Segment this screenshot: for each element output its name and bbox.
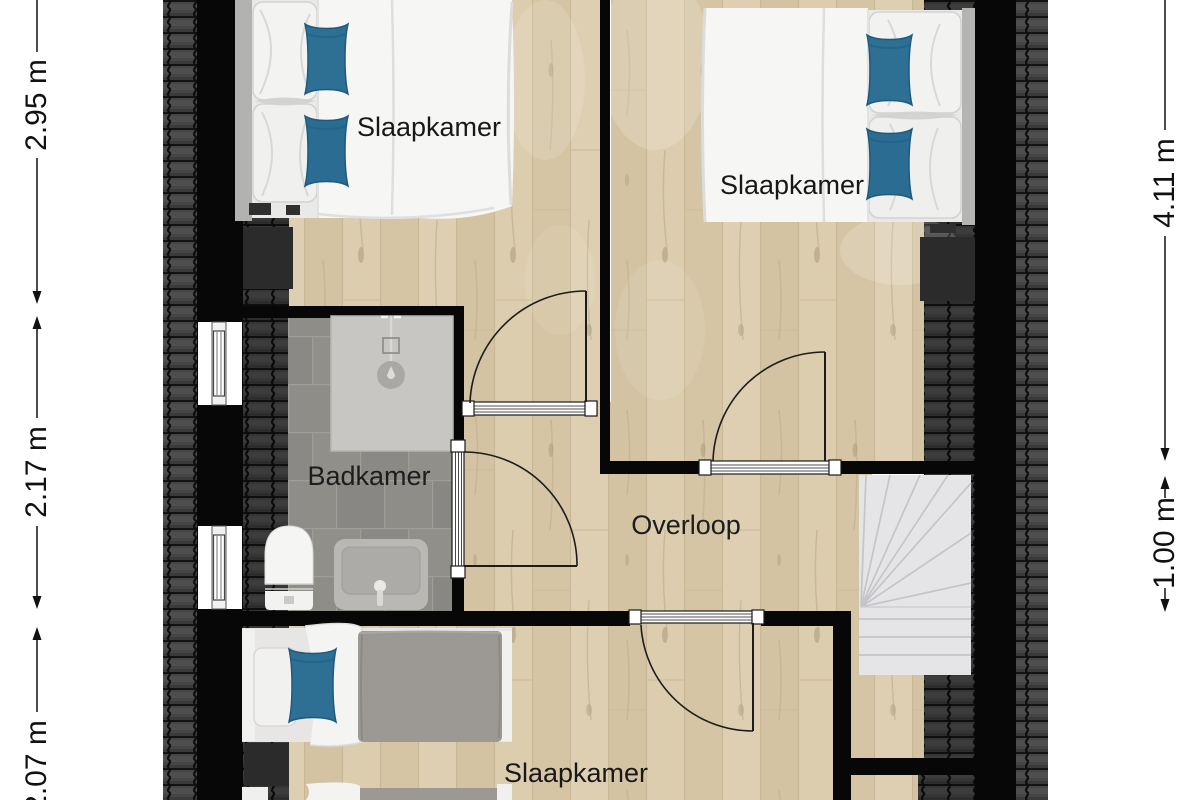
svg-text:Overloop: Overloop — [631, 510, 741, 540]
svg-text:Slaapkamer: Slaapkamer — [504, 758, 648, 788]
svg-text:2.07 m: 2.07 m — [20, 720, 53, 800]
svg-text:2.17 m: 2.17 m — [20, 426, 53, 518]
svg-text:1.00 m: 1.00 m — [1148, 497, 1181, 589]
svg-text:Slaapkamer: Slaapkamer — [720, 170, 864, 200]
svg-text:Badkamer: Badkamer — [307, 461, 430, 491]
svg-text:2.95 m: 2.95 m — [20, 59, 53, 151]
svg-text:Slaapkamer: Slaapkamer — [357, 112, 501, 142]
svg-text:4.11 m: 4.11 m — [1148, 138, 1181, 228]
